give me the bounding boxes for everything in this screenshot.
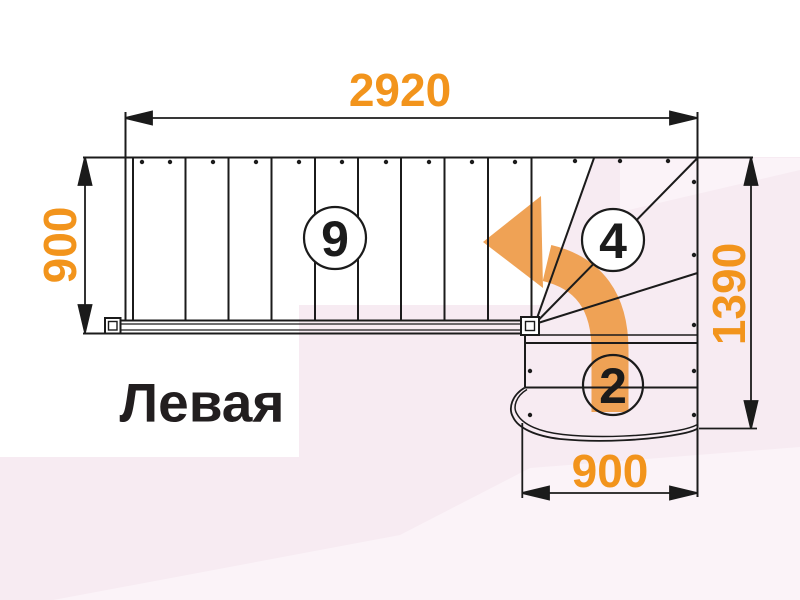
orientation-title: Левая: [120, 376, 285, 431]
dimension-top-label: 2920: [349, 67, 451, 113]
staircase-plan-diagram: 9 4 2 2920 900 1390 900 Левая: [0, 0, 800, 600]
upper-flight-count-label: 9: [321, 211, 349, 267]
newel-post-inner: [526, 322, 535, 331]
newel-post-inner: [109, 322, 118, 331]
dimension-left-label: 900: [37, 207, 83, 284]
winder-count-label: 4: [599, 213, 627, 269]
dimension-bottom-label: 900: [572, 448, 649, 494]
lower-flight-count-label: 2: [599, 358, 627, 414]
dimension-right-label: 1390: [706, 243, 752, 345]
